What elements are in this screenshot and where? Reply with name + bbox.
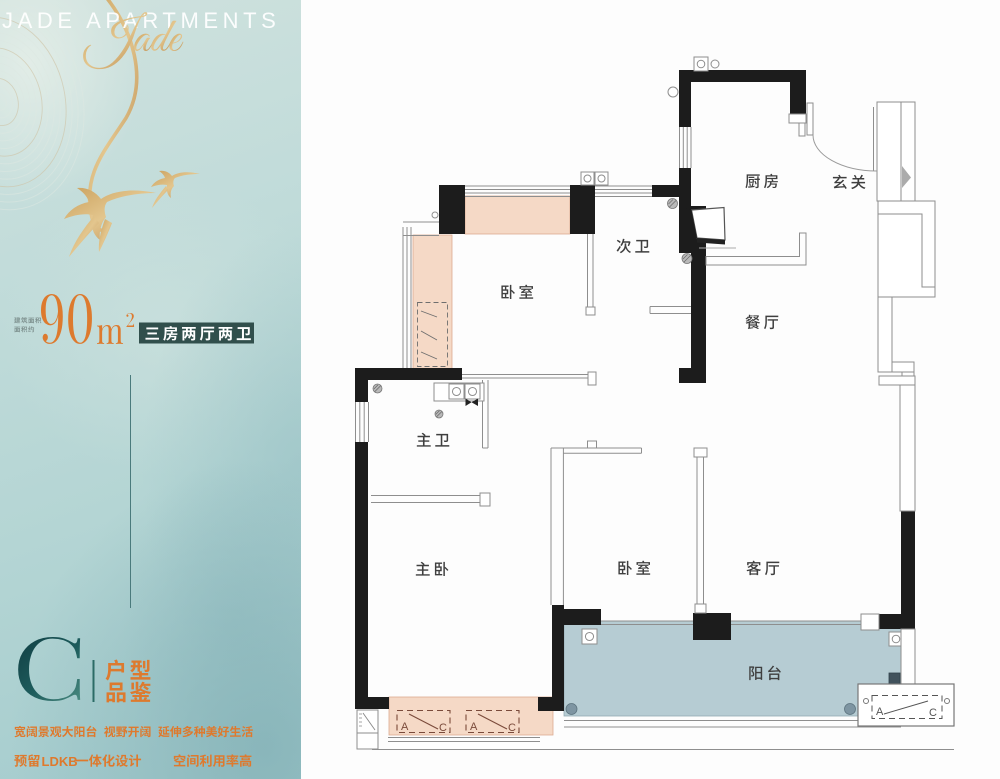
svg-text:A: A: [470, 721, 478, 733]
svg-text:C: C: [929, 707, 937, 719]
svg-text:LDKB: LDKB: [42, 754, 78, 769]
svg-text:JADE APARTMENTS: JADE APARTMENTS: [2, 8, 280, 33]
svg-text:A: A: [401, 721, 409, 733]
svg-text:C: C: [508, 722, 516, 734]
svg-text:A: A: [876, 706, 884, 718]
svg-text:C: C: [439, 722, 447, 734]
